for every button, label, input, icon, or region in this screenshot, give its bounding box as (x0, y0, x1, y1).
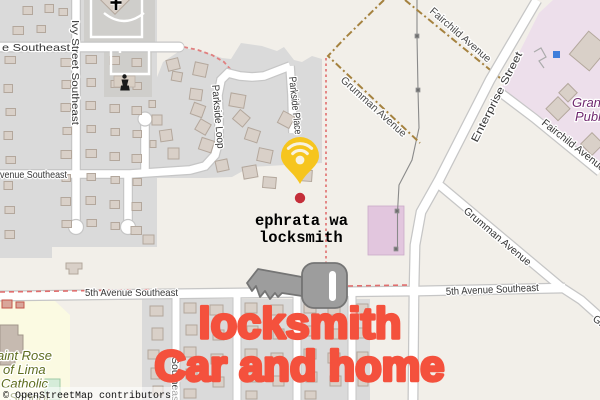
svg-text:locksmith: locksmith (259, 229, 343, 247)
svg-text:ephrata wa: ephrata wa (255, 212, 348, 230)
svg-text:aint Rose: aint Rose (0, 348, 52, 363)
svg-text:locksmith: locksmith (199, 299, 402, 348)
svg-text:5th Avenue Southeast: 5th Avenue Southeast (85, 287, 178, 299)
svg-text:Ivy Street Southeast: Ivy Street Southeast (69, 20, 81, 125)
svg-text:e Southeast: e Southeast (2, 42, 70, 54)
svg-text:of Lima: of Lima (3, 362, 46, 377)
svg-text:venue Southeast: venue Southeast (0, 169, 67, 181)
svg-text:Grant Publ: Grant Publ (572, 95, 600, 124)
svg-text:Car and home: Car and home (155, 343, 445, 391)
svg-text:© OpenStreetMap contributors: © OpenStreetMap contributors (3, 390, 171, 400)
